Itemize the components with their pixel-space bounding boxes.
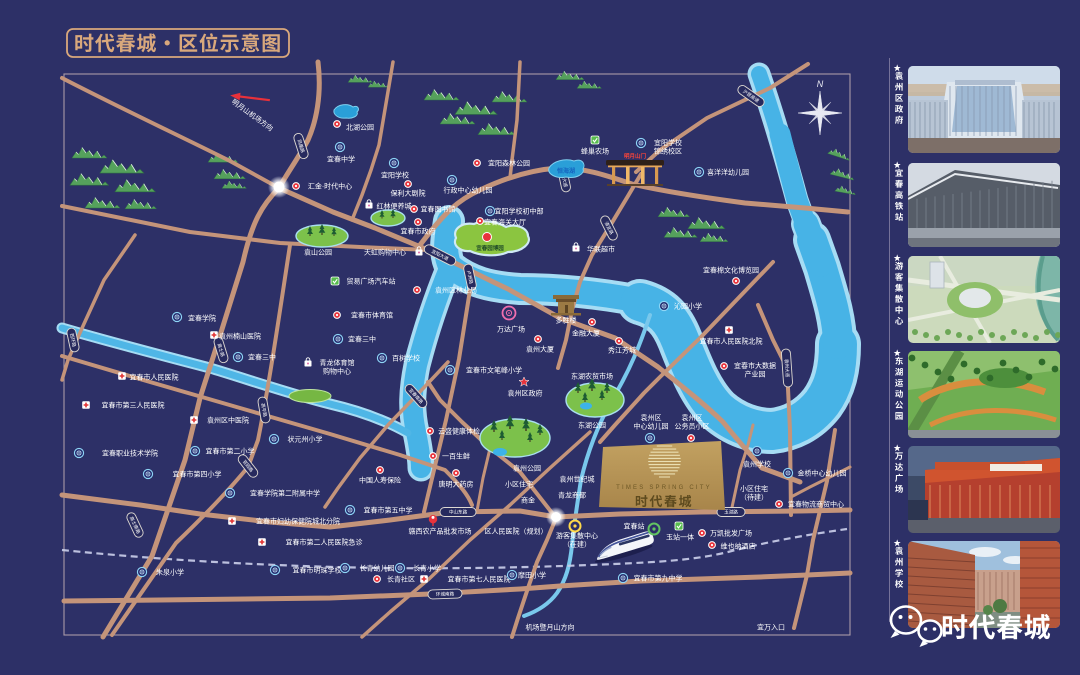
svg-text:长青幼儿园: 长青幼儿园 — [360, 564, 395, 573]
svg-text:状元州小学: 状元州小学 — [288, 435, 323, 444]
svg-text:保利大剧院: 保利大剧院 — [391, 189, 426, 198]
svg-text:金融大厦: 金融大厦 — [572, 329, 600, 338]
svg-text:宜春市第九中学: 宜春市第九中学 — [634, 574, 683, 583]
svg-text:百树学校: 百树学校 — [392, 354, 420, 363]
svg-text:宜春市明珠学校: 宜春市明珠学校 — [293, 566, 342, 575]
svg-text:宜春市政府: 宜春市政府 — [401, 227, 436, 236]
svg-text:袁州楠山医院: 袁州楠山医院 — [219, 332, 261, 341]
svg-text:宜春职业技术学院: 宜春职业技术学院 — [102, 449, 158, 458]
svg-text:红林便养城: 红林便养城 — [377, 202, 412, 211]
svg-text:宜春中学: 宜春中学 — [327, 155, 355, 164]
svg-text:袁州区政府: 袁州区政府 — [508, 389, 543, 398]
svg-text:袁山公园: 袁山公园 — [304, 248, 332, 257]
svg-text:宜春市体育馆: 宜春市体育馆 — [351, 311, 393, 320]
svg-text:宜春市妇幼保健院城北分院: 宜春市妇幼保健院城北分院 — [256, 517, 340, 526]
svg-text:宜春市第三人民医院: 宜春市第三人民医院 — [102, 401, 165, 410]
svg-text:赣西农产品批发市场: 赣西农产品批发市场 — [409, 527, 472, 536]
svg-text:金桥中心幼儿园: 金桥中心幼儿园 — [798, 469, 847, 478]
svg-text:宜阳森林公园: 宜阳森林公园 — [488, 159, 530, 168]
svg-text:游客集散中心: 游客集散中心 — [556, 531, 598, 540]
svg-text:锦绣校区: 锦绣校区 — [654, 147, 682, 156]
svg-text:青龙商都: 青龙商都 — [558, 491, 586, 500]
svg-text:东湖农贸市场: 东湖农贸市场 — [571, 372, 613, 381]
svg-text:（待建）: （待建） — [740, 493, 768, 502]
svg-text:产业园: 产业园 — [745, 370, 766, 379]
svg-text:袁州大厦: 袁州大厦 — [526, 345, 554, 354]
svg-text:玉站一体: 玉站一体 — [666, 533, 694, 542]
svg-text:宜春图书馆: 宜春图书馆 — [421, 205, 456, 214]
svg-text:唐明大药房: 唐明大药房 — [439, 480, 474, 489]
svg-text:维也纳酒店: 维也纳酒店 — [721, 542, 756, 551]
svg-text:一百生鲜: 一百生鲜 — [442, 452, 470, 461]
svg-text:多胜楼: 多胜楼 — [556, 316, 577, 325]
svg-text:北湖公园: 北湖公园 — [346, 123, 374, 132]
svg-text:朱泉小学: 朱泉小学 — [156, 568, 184, 577]
svg-text:宜阳学校: 宜阳学校 — [381, 171, 409, 180]
svg-text:小区住宅: 小区住宅 — [505, 480, 533, 489]
svg-text:公务员小区: 公务员小区 — [675, 422, 710, 431]
svg-text:宜万入口: 宜万入口 — [757, 623, 785, 632]
svg-text:东湖公园: 东湖公园 — [578, 421, 606, 430]
svg-text:宜春学院: 宜春学院 — [188, 314, 216, 323]
svg-text:宜春物流商贸中心: 宜春物流商贸中心 — [788, 500, 844, 509]
svg-text:宜春站: 宜春站 — [624, 522, 645, 531]
svg-text:摩田小学: 摩田小学 — [518, 571, 546, 580]
svg-text:玉湛路: 玉湛路 — [724, 509, 738, 516]
svg-text:中心幼儿园: 中心幼儿园 — [634, 422, 669, 431]
svg-text:华联超市: 华联超市 — [587, 245, 615, 254]
svg-text:宜春市人民医院: 宜春市人民医院 — [130, 373, 179, 382]
svg-text:宜春市人民医院北院: 宜春市人民医院北院 — [700, 337, 763, 346]
svg-text:袁州区林业局: 袁州区林业局 — [435, 286, 477, 295]
svg-text:机场暨月山方向: 机场暨月山方向 — [526, 623, 575, 632]
svg-text:中山东路: 中山东路 — [449, 509, 468, 516]
svg-text:行政中心幼儿园: 行政中心幼儿园 — [444, 186, 493, 195]
svg-text:秀江芳城: 秀江芳城 — [608, 346, 636, 355]
svg-text:宜春市第七人民医院: 宜春市第七人民医院 — [448, 575, 511, 584]
svg-text:汇金·时代中心: 汇金·时代中心 — [308, 182, 352, 191]
svg-text:袁州世纪城: 袁州世纪城 — [560, 475, 595, 484]
svg-text:宜春市文笔峰小学: 宜春市文笔峰小学 — [466, 366, 522, 375]
svg-text:袁州区中医院: 袁州区中医院 — [207, 416, 249, 425]
svg-text:喜洋洋幼儿园: 喜洋洋幼儿园 — [707, 168, 749, 177]
svg-text:沁园小学: 沁园小学 — [674, 302, 702, 311]
svg-text:宜春三中: 宜春三中 — [348, 335, 376, 344]
svg-text:明月山门: 明月山门 — [624, 152, 647, 160]
svg-text:TIMES SPRING CITY: TIMES SPRING CITY — [616, 485, 712, 491]
svg-text:宜春学院第二附属中学: 宜春学院第二附属中学 — [250, 489, 320, 498]
svg-text:小区住宅: 小区住宅 — [740, 484, 768, 493]
svg-text:宜春海关大厅: 宜春海关大厅 — [484, 218, 526, 227]
svg-text:宜春市第二小学: 宜春市第二小学 — [206, 447, 255, 456]
svg-text:袁州区: 袁州区 — [641, 413, 662, 422]
svg-text:长青小学: 长青小学 — [413, 564, 441, 573]
svg-text:中国人寿保险: 中国人寿保险 — [359, 476, 401, 485]
svg-text:贸易广场汽车站: 贸易广场汽车站 — [347, 277, 396, 286]
svg-text:宜春市第四小学: 宜春市第四小学 — [173, 470, 222, 479]
svg-text:长青社区: 长青社区 — [387, 575, 415, 584]
svg-text:宜春棉文化博览园: 宜春棉文化博览园 — [703, 266, 759, 275]
svg-text:蜂巢农场: 蜂巢农场 — [581, 147, 609, 156]
svg-text:宜春市第五中学: 宜春市第五中学 — [364, 506, 413, 515]
svg-text:袁州区: 袁州区 — [682, 413, 703, 422]
svg-text:恒海湖: 恒海湖 — [557, 167, 575, 175]
svg-text:宜春市第二人民医院急诊: 宜春市第二人民医院急诊 — [286, 538, 363, 547]
svg-text:购物中心: 购物中心 — [323, 367, 351, 376]
svg-text:（在建）: （在建） — [563, 540, 591, 549]
svg-text:区人民医院（规划）: 区人民医院（规划） — [485, 527, 548, 536]
svg-text:N: N — [817, 79, 824, 89]
svg-text:宜阳学校: 宜阳学校 — [654, 138, 682, 147]
svg-text:青龙体育馆: 青龙体育馆 — [320, 358, 355, 367]
svg-text:万达广场: 万达广场 — [497, 325, 525, 334]
svg-text:宜春园博园: 宜春园博园 — [476, 244, 504, 252]
svg-text:云盛健康体检: 云盛健康体检 — [438, 427, 480, 436]
svg-text:商金: 商金 — [521, 496, 535, 505]
svg-text:袁州学校: 袁州学校 — [743, 460, 771, 469]
svg-text:宜春市大数据: 宜春市大数据 — [734, 361, 776, 370]
svg-text:万凯批发广场: 万凯批发广场 — [710, 529, 752, 538]
svg-text:宜春三中: 宜春三中 — [248, 353, 276, 362]
svg-text:袁州公园: 袁州公园 — [513, 464, 541, 473]
svg-text:宜阳学校初中部: 宜阳学校初中部 — [495, 207, 544, 216]
svg-text:天虹购物中心: 天虹购物中心 — [364, 248, 406, 257]
